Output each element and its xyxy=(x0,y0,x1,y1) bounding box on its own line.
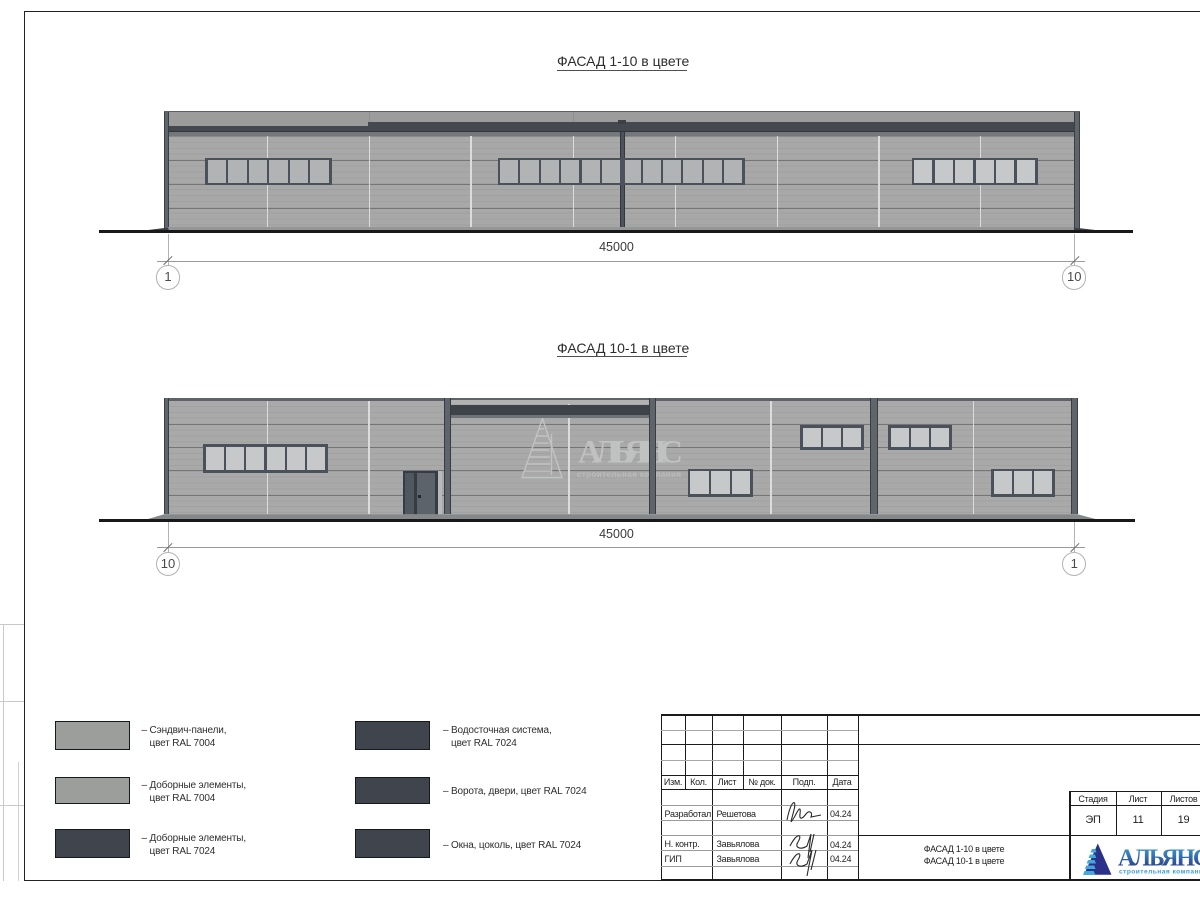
svg-text:АЛЬЯНС: АЛЬЯНС xyxy=(578,435,683,471)
svg-text:строительная компания: строительная компания xyxy=(577,470,681,479)
svg-text:строительная компания: строительная компания xyxy=(1119,868,1200,875)
